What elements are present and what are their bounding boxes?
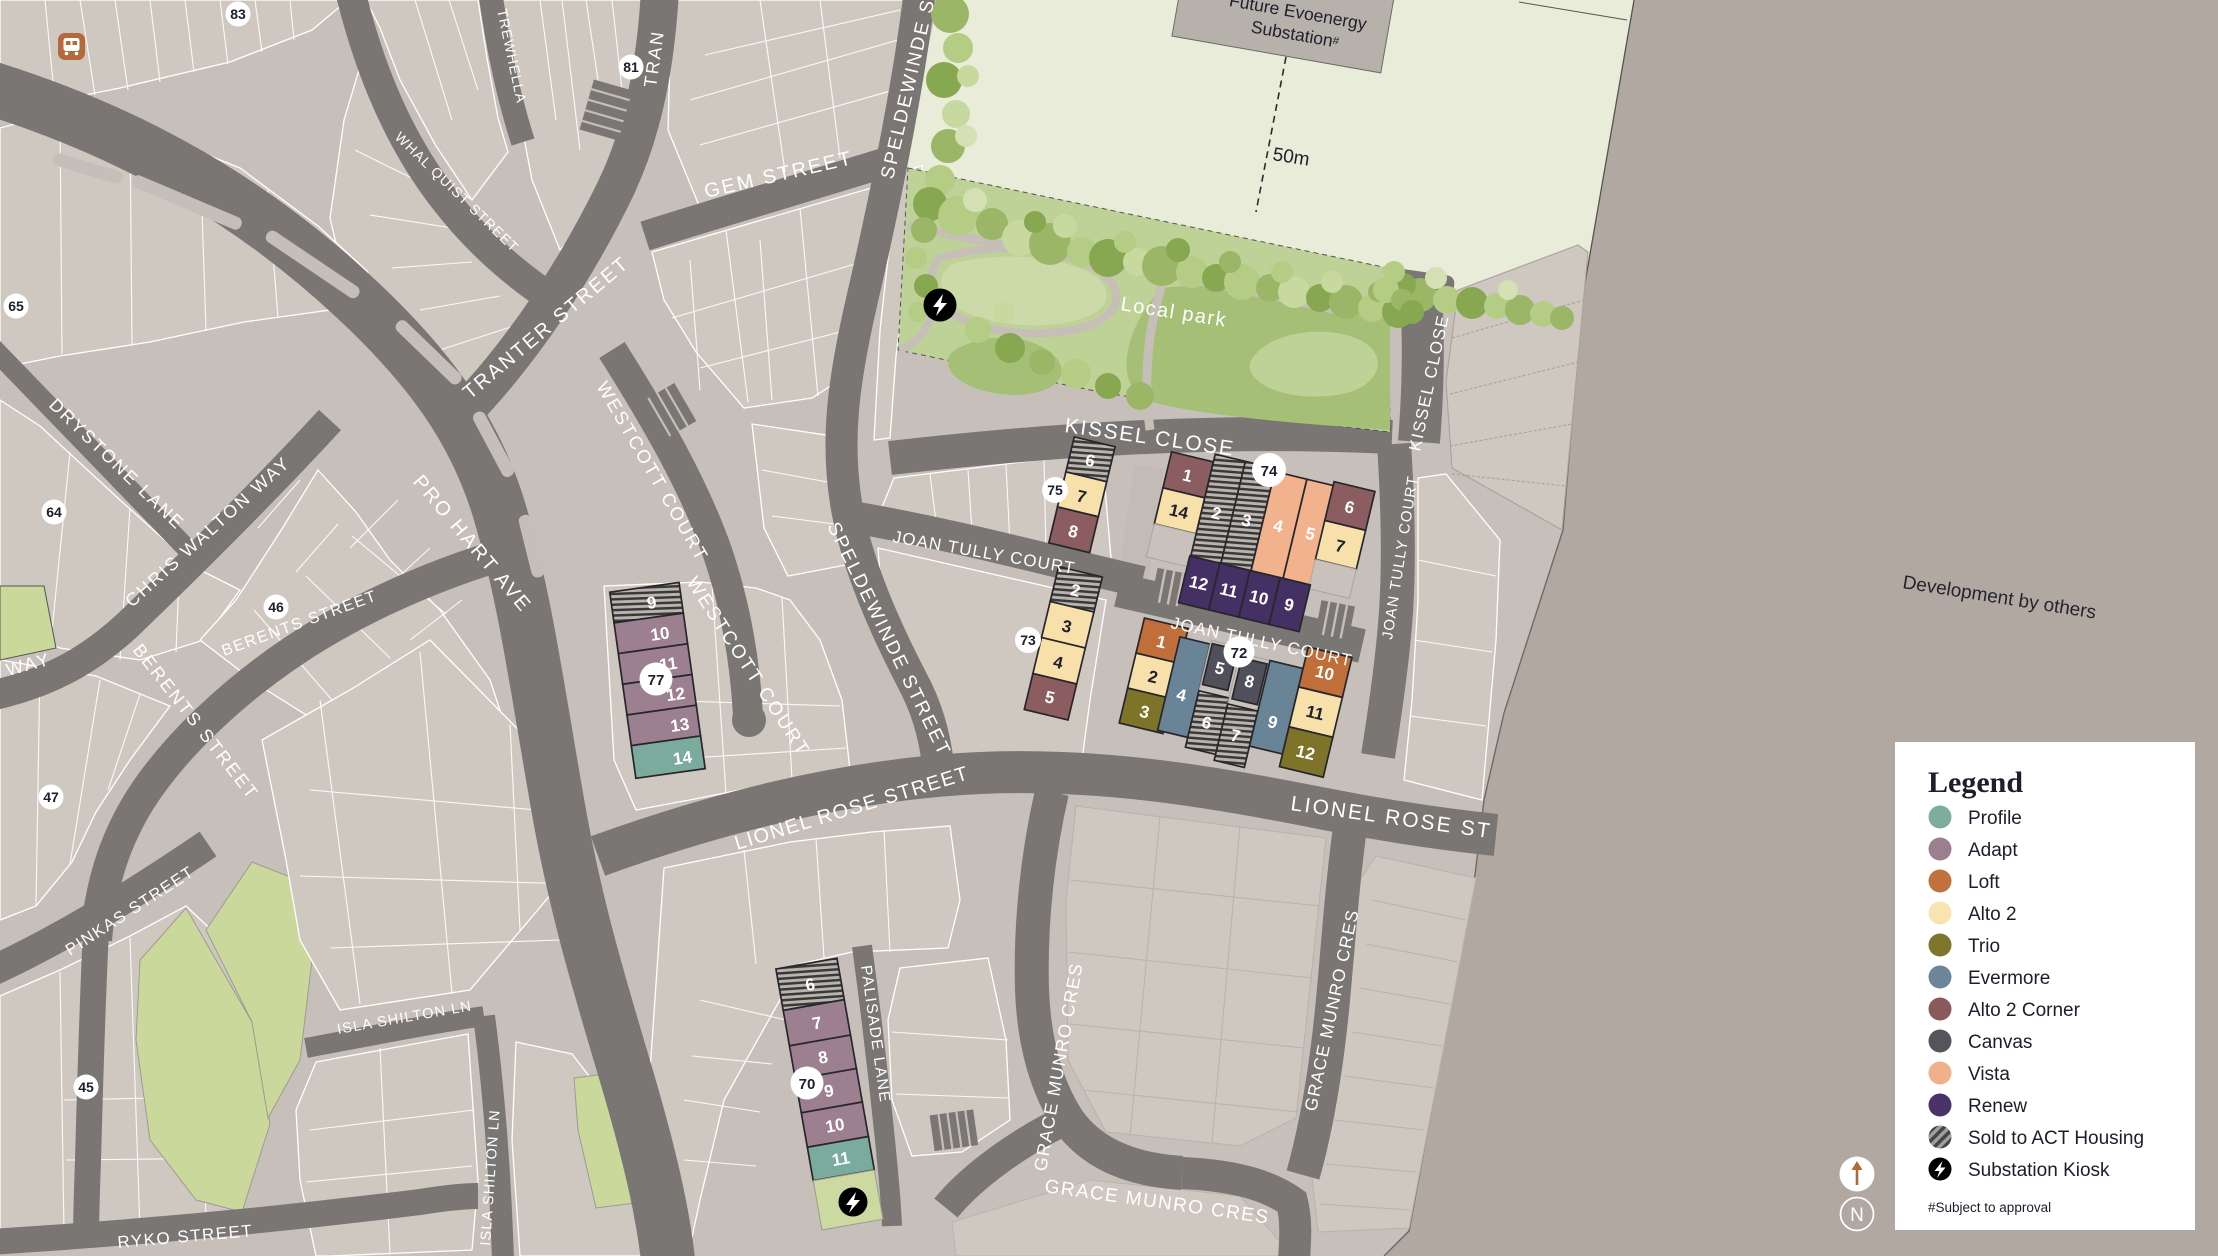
svg-text:Evermore: Evermore	[1968, 968, 2050, 989]
svg-text:74: 74	[1261, 463, 1278, 480]
svg-text:11: 11	[830, 1148, 851, 1170]
svg-text:73: 73	[1020, 632, 1036, 648]
svg-text:77: 77	[648, 672, 665, 689]
svg-text:Alto 2: Alto 2	[1968, 904, 2017, 925]
svg-text:10: 10	[824, 1115, 846, 1137]
svg-text:Vista: Vista	[1968, 1064, 2010, 1085]
svg-text:Alto 2 Corner: Alto 2 Corner	[1968, 1000, 2081, 1021]
svg-text:83: 83	[230, 6, 246, 22]
svg-text:46: 46	[268, 599, 284, 615]
svg-text:#Subject to approval: #Subject to approval	[1928, 1200, 2051, 1215]
svg-text:70: 70	[799, 1076, 816, 1093]
svg-text:Substation Kiosk: Substation Kiosk	[1968, 1160, 2110, 1181]
svg-text:75: 75	[1047, 482, 1063, 498]
svg-text:45: 45	[78, 1079, 94, 1095]
svg-text:Sold to ACT Housing: Sold to ACT Housing	[1968, 1128, 2144, 1149]
svg-text:Renew: Renew	[1968, 1096, 2027, 1117]
svg-text:Loft: Loft	[1968, 872, 2000, 893]
svg-text:Legend: Legend	[1928, 766, 2023, 799]
svg-text:10: 10	[649, 623, 670, 644]
svg-text:64: 64	[46, 504, 62, 520]
svg-text:Adapt: Adapt	[1968, 840, 2018, 861]
svg-text:13: 13	[669, 714, 690, 735]
svg-text:Canvas: Canvas	[1968, 1032, 2032, 1053]
svg-text:65: 65	[8, 298, 24, 314]
svg-text:72: 72	[1231, 645, 1248, 662]
svg-text:N: N	[1850, 1205, 1864, 1226]
svg-text:Profile: Profile	[1968, 808, 2022, 829]
svg-text:47: 47	[43, 789, 59, 805]
svg-text:81: 81	[623, 59, 639, 75]
svg-text:Trio: Trio	[1968, 936, 2000, 957]
svg-text:14: 14	[672, 747, 694, 769]
